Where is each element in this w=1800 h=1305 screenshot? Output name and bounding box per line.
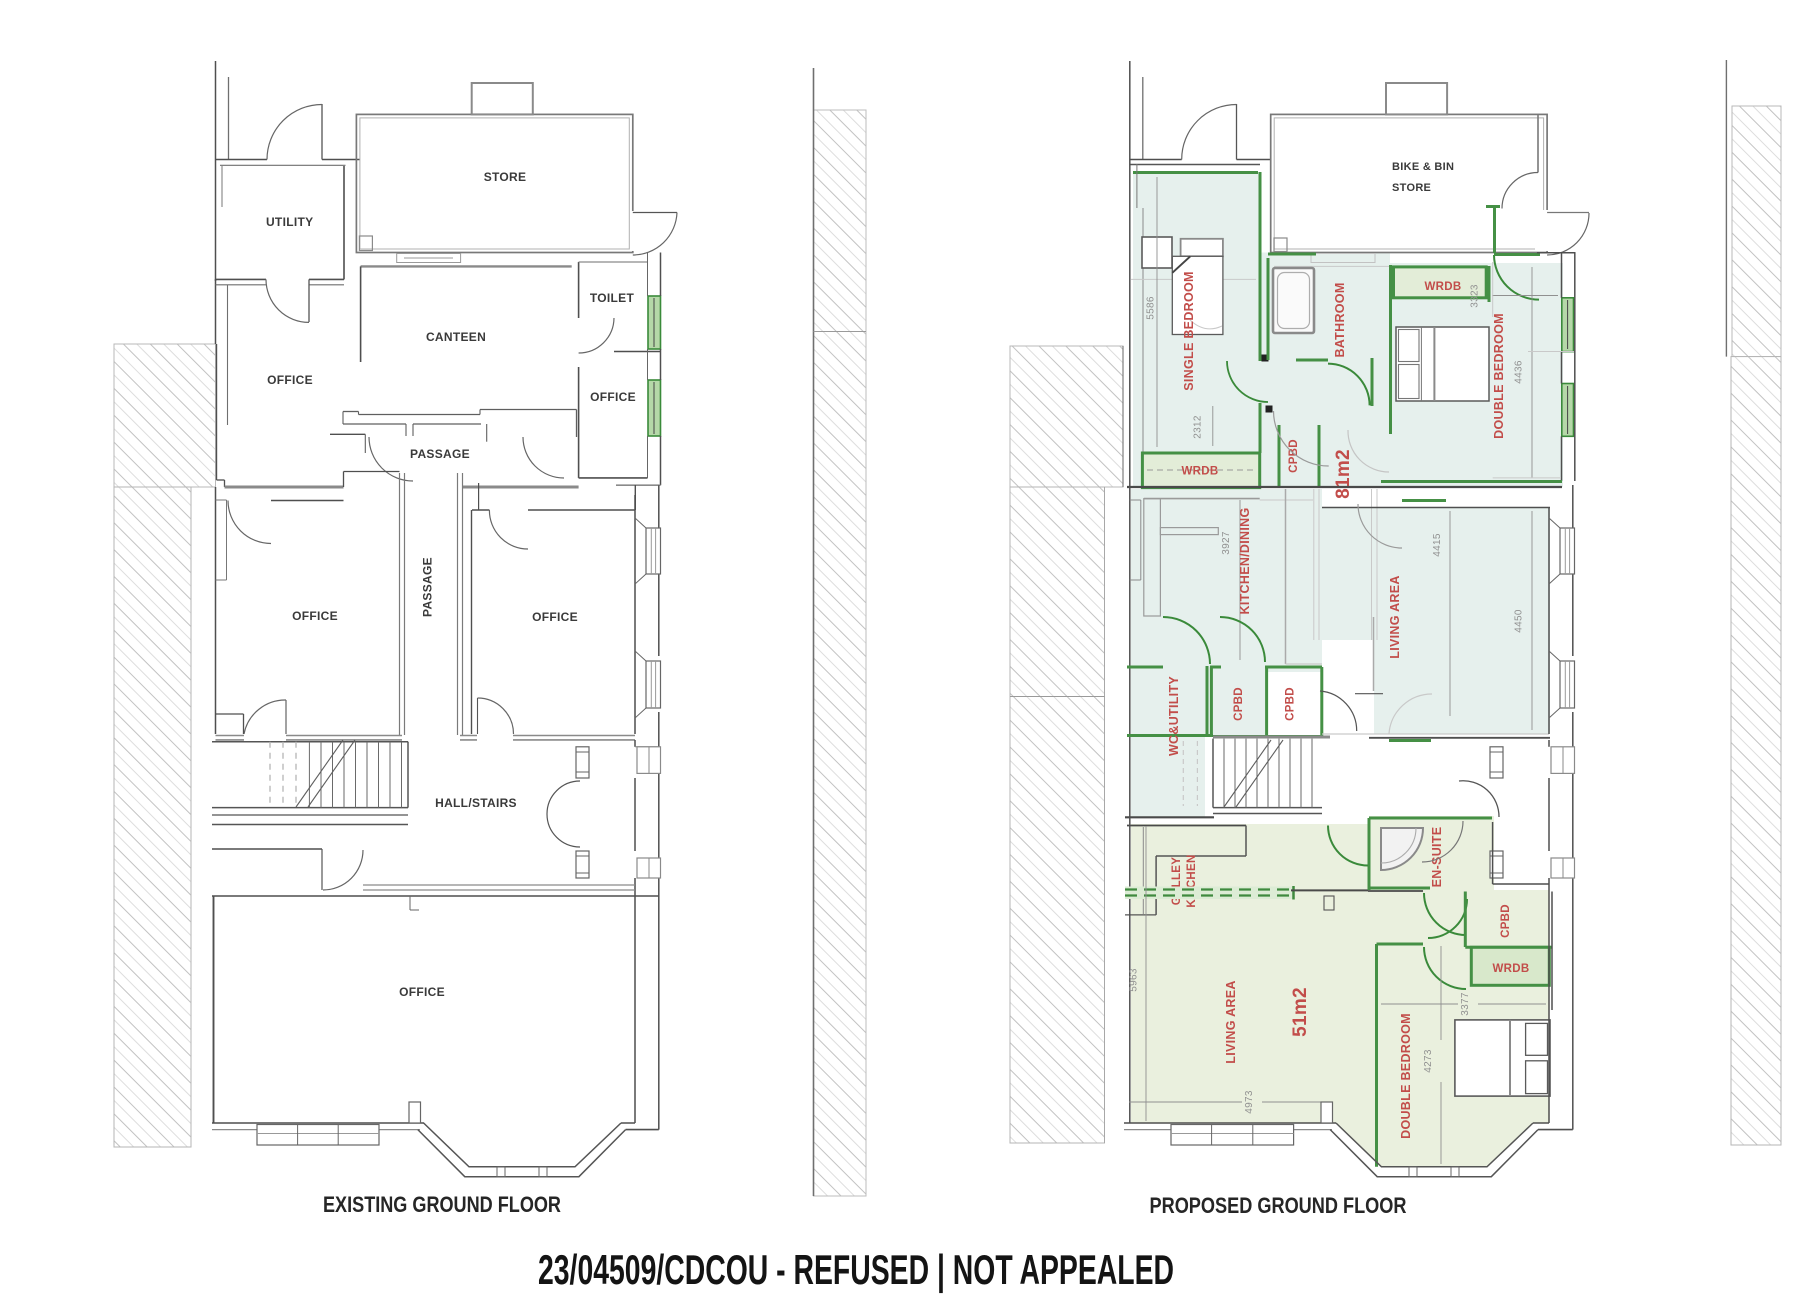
- svg-text:OFFICE: OFFICE: [532, 610, 578, 624]
- svg-text:WRDB: WRDB: [1425, 281, 1462, 293]
- svg-text:51m2: 51m2: [1290, 987, 1311, 1037]
- svg-text:OFFICE: OFFICE: [292, 609, 338, 623]
- svg-text:DOUBLE BEDROOM: DOUBLE BEDROOM: [1492, 313, 1506, 439]
- svg-text:PASSAGE: PASSAGE: [421, 557, 435, 617]
- svg-text:LIVING AREA: LIVING AREA: [1388, 575, 1402, 658]
- svg-text:2312: 2312: [1192, 415, 1203, 439]
- svg-text:4450: 4450: [1514, 609, 1525, 633]
- svg-text:WRDB: WRDB: [1493, 963, 1530, 975]
- svg-text:PASSAGE: PASSAGE: [410, 447, 470, 461]
- svg-text:4273: 4273: [1423, 1049, 1434, 1073]
- svg-text:4436: 4436: [1514, 360, 1525, 384]
- svg-text:4415: 4415: [1432, 533, 1443, 557]
- svg-text:81m2: 81m2: [1333, 449, 1354, 499]
- svg-text:HALL/STAIRS: HALL/STAIRS: [435, 796, 517, 810]
- svg-text:5963: 5963: [1129, 968, 1140, 992]
- svg-text:DOUBLE BEDROOM: DOUBLE BEDROOM: [1399, 1013, 1413, 1139]
- svg-text:BIKE & BIN: BIKE & BIN: [1392, 161, 1454, 173]
- svg-text:OFFICE: OFFICE: [590, 390, 636, 404]
- svg-text:OFFICE: OFFICE: [399, 985, 445, 999]
- svg-text:CPBD: CPBD: [1285, 687, 1297, 721]
- svg-text:EXISTING GROUND FLOOR: EXISTING GROUND FLOOR: [323, 1192, 561, 1217]
- svg-text:CPBD: CPBD: [1500, 904, 1512, 938]
- svg-text:BATHROOM: BATHROOM: [1333, 282, 1347, 357]
- svg-text:PROPOSED GROUND FLOOR: PROPOSED GROUND FLOOR: [1150, 1193, 1407, 1218]
- svg-text:LIVING AREA: LIVING AREA: [1224, 980, 1238, 1063]
- svg-text:3927: 3927: [1221, 531, 1232, 555]
- svg-text:CANTEEN: CANTEEN: [426, 330, 486, 344]
- svg-text:4973: 4973: [1244, 1090, 1255, 1114]
- svg-text:OFFICE: OFFICE: [267, 373, 313, 387]
- svg-text:KITCHEN: KITCHEN: [1186, 854, 1198, 907]
- svg-text:KITCHEN/DINING: KITCHEN/DINING: [1238, 508, 1252, 615]
- svg-text:5586: 5586: [1146, 296, 1157, 320]
- svg-text:STORE: STORE: [1392, 182, 1431, 194]
- svg-text:SINGLE BEDROOM: SINGLE BEDROOM: [1182, 271, 1196, 390]
- svg-text:3377: 3377: [1460, 992, 1471, 1016]
- svg-text:CPBD: CPBD: [1288, 439, 1300, 473]
- svg-text:23/04509/CDCOU - REFUSED | NOT: 23/04509/CDCOU - REFUSED | NOT APPEALED: [538, 1246, 1174, 1294]
- svg-text:TOILET: TOILET: [590, 291, 635, 305]
- svg-text:STORE: STORE: [484, 170, 527, 184]
- svg-text:WC&UTILITY: WC&UTILITY: [1167, 676, 1181, 756]
- svg-text:CPBD: CPBD: [1233, 687, 1245, 721]
- svg-text:UTILITY: UTILITY: [266, 215, 313, 229]
- svg-text:WRDB: WRDB: [1182, 466, 1219, 478]
- svg-text:3323: 3323: [1470, 284, 1481, 308]
